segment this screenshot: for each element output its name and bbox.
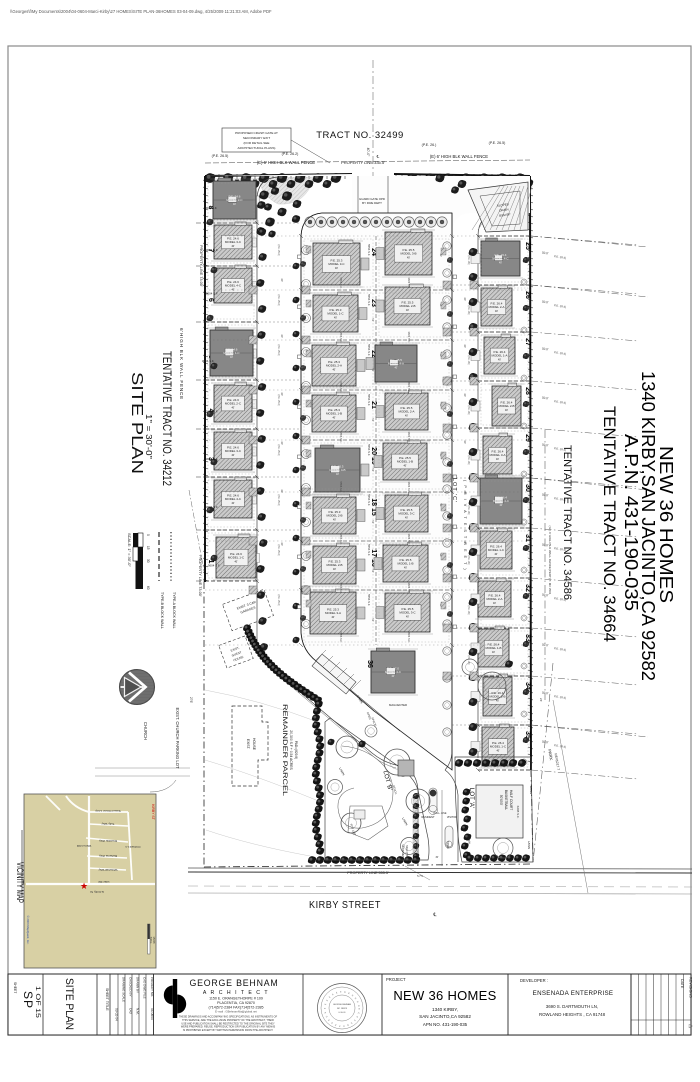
svg-text:E-mail : GBehnamMa@global.ne: E-mail : GBehnamMa@global.net: [215, 1010, 257, 1014]
svg-text:EXIST.: EXIST.: [246, 739, 250, 749]
svg-text:Lilac Rd: Lilac Rd: [98, 880, 109, 884]
svg-text:40': 40': [495, 310, 499, 313]
svg-text:REMAINDER PARCEL: REMAINDER PARCEL: [281, 704, 288, 797]
svg-text:PROJECT: PROJECT: [386, 977, 406, 982]
svg-text:40': 40': [231, 454, 235, 457]
svg-text:Orchard Ln: Orchard Ln: [125, 845, 140, 849]
svg-text:40': 40': [463, 344, 467, 348]
svg-text:KIRBY ST: KIRBY ST: [151, 804, 155, 819]
svg-text:PROPOSED CRASH GATE AT: PROPOSED CRASH GATE AT: [235, 131, 278, 135]
svg-text:25: 25: [524, 242, 531, 250]
svg-text:36: 36: [366, 660, 373, 668]
svg-text:HOUSE: HOUSE: [252, 738, 256, 751]
svg-text:SIGN (TYP): SIGN (TYP): [405, 845, 409, 859]
svg-text:PAD=(829.8): PAD=(829.8): [294, 741, 298, 759]
svg-text:26: 26: [524, 291, 531, 299]
svg-text:SITE PLAN: SITE PLAN: [63, 978, 75, 1030]
svg-text:O-D: O-D: [129, 1008, 133, 1015]
svg-text:1500ft: 1500ft: [152, 936, 156, 943]
svg-text:Whitehall Way: Whitehall Way: [98, 868, 118, 872]
svg-text:40': 40': [280, 278, 284, 282]
svg-text:3604 S.F.: 3604 S.F.: [407, 482, 411, 493]
svg-text:APN NO. 431-190-035: APN NO. 431-190-035: [423, 1022, 468, 1027]
svg-text:△: △: [688, 1024, 694, 1028]
svg-text:40': 40': [333, 568, 337, 571]
svg-text:28: 28: [524, 387, 531, 395]
svg-text:40': 40': [280, 334, 284, 338]
svg-text:(FOR DETAIL SEE: (FOR DETAIL SEE: [244, 141, 270, 145]
svg-text:30': 30': [435, 856, 439, 859]
svg-text:1 OF 15: 1 OF 15: [34, 986, 40, 1019]
svg-text:MODEL 1-C: MODEL 1-C: [490, 745, 507, 749]
svg-text:CAD DWG FILE: CAD DWG FILE: [143, 977, 147, 999]
svg-text:IS PROHIBITED EXCEPT BY WR: IS PROHIBITED EXCEPT BY WRITTEN PERMISSI…: [183, 1029, 274, 1032]
svg-text:33: 33: [524, 634, 531, 642]
svg-text:40': 40': [499, 261, 503, 264]
svg-text:1" = 30'-0": 1" = 30'-0": [144, 414, 154, 459]
svg-text:40': 40': [280, 441, 284, 445]
svg-text:5556 S.F.: 5556 S.F.: [367, 394, 371, 406]
svg-text:(P.E. 25.3): (P.E. 25.3): [277, 294, 280, 305]
svg-text:MODEL 3-A: MODEL 3-A: [489, 453, 505, 457]
svg-text:(P.E. 25.3): (P.E. 25.3): [277, 244, 280, 255]
svg-text:PROPERTY LINE 73.00': PROPERTY LINE 73.00': [198, 555, 202, 597]
svg-text:40': 40': [505, 409, 509, 412]
svg-text:E.Kirby St: E.Kirby St: [90, 890, 104, 894]
svg-text:SDWK: SDWK: [446, 841, 450, 849]
svg-text:TYPE-B BLOCK WALL: TYPE-B BLOCK WALL: [160, 592, 164, 629]
svg-text:MODEL 2-C: MODEL 2-C: [225, 402, 242, 406]
svg-text:5556 S.F.: 5556 S.F.: [367, 344, 371, 356]
svg-text:3604 S.F.: 3604 S.F.: [205, 206, 217, 210]
svg-text:40': 40': [280, 542, 284, 546]
svg-text:TYPE-A BLOCK WALL: TYPE-A BLOCK WALL: [172, 592, 176, 629]
svg-text:CHECKED BY: CHECKED BY: [129, 977, 133, 997]
svg-text:60: 60: [146, 586, 150, 590]
svg-text:40': 40': [231, 245, 235, 248]
svg-text:LAWN: LAWN: [529, 786, 533, 794]
svg-text:(P.E. 25.3): (P.E. 25.3): [277, 494, 280, 505]
svg-text:5556 S.F.: 5556 S.F.: [367, 544, 371, 556]
svg-text:(P.E. 26): (P.E. 26): [467, 455, 470, 464]
svg-text:5556 S.F.: 5556 S.F.: [339, 583, 343, 594]
svg-text:(P.E. 25.3): (P.E. 25.3): [277, 544, 280, 555]
svg-text:1150 E. ORANGETHORPE # 109: 1150 E. ORANGETHORPE # 109: [209, 997, 263, 1001]
svg-text:( E ) 6' HIGH BLK WALL FENC: ( E ) 6' HIGH BLK WALL FENCE(PERT) T. M#…: [548, 526, 552, 595]
svg-text:MODEL 1-B: MODEL 1-B: [397, 562, 413, 566]
svg-text:(P.E. 26): (P.E. 26): [467, 305, 470, 314]
svg-text:3604 S.F.: 3604 S.F.: [206, 292, 218, 296]
svg-text:A.P.N. 431-190-035: A.P.N. 431-190-035: [621, 434, 641, 611]
svg-text:MODEL 4-B: MODEL 4-B: [329, 468, 345, 472]
svg-text:MODEL 1-B: MODEL 1-B: [326, 412, 342, 416]
svg-text:40': 40': [496, 458, 500, 461]
svg-text:(P.E. 26.): (P.E. 26.): [422, 143, 437, 147]
svg-text:SHEET: SHEET: [13, 982, 17, 993]
svg-text:(P.E. 25.3): (P.E. 25.3): [277, 444, 280, 455]
svg-text:(P.E. 25.3): (P.E. 25.3): [277, 594, 280, 605]
svg-text:40': 40': [231, 502, 235, 505]
svg-text:MODEL 4-C: MODEL 4-C: [492, 257, 509, 261]
svg-text:40': 40': [407, 256, 411, 259]
svg-text:40': 40': [499, 504, 503, 507]
svg-text:6208 S.F.: 6208 S.F.: [516, 806, 520, 819]
svg-text:5556 S.F.: 5556 S.F.: [367, 494, 371, 506]
svg-text:MONUMENT: MONUMENT: [401, 844, 405, 860]
svg-text:Bahama Way: Bahama Way: [99, 854, 117, 858]
svg-text:DRAWING SCALE: DRAWING SCALE: [122, 977, 126, 1002]
svg-text:ENSENADA ENTERPRISE: ENSENADA ENTERPRISE: [533, 990, 614, 997]
svg-text:40': 40': [494, 553, 498, 556]
svg-text:(P.E. 26.2): (P.E. 26.2): [282, 152, 299, 156]
svg-text:5556 S.F.: 5556 S.F.: [367, 594, 371, 606]
svg-text:MODEL 4-C: MODEL 4-C: [225, 284, 242, 288]
svg-text:MODEL 2-A: MODEL 2-A: [326, 364, 342, 368]
svg-text:0: 0: [146, 534, 150, 536]
svg-text:40': 40': [391, 675, 395, 678]
svg-text:MODEL 1-C: MODEL 1-C: [228, 556, 245, 560]
svg-text:40': 40': [334, 316, 338, 319]
svg-text:40': 40': [405, 414, 409, 417]
svg-text:27: 27: [524, 338, 531, 346]
svg-text:MODEL 2-C: MODEL 2-C: [226, 198, 243, 202]
svg-text:5556 S.F.: 5556 S.F.: [367, 444, 371, 456]
svg-text:40': 40': [403, 464, 407, 467]
svg-text:40': 40': [333, 518, 337, 521]
svg-text:MODEL 3-C: MODEL 3-C: [328, 262, 345, 266]
svg-text:(P.E. 26): (P.E. 26): [467, 555, 470, 564]
svg-text:MODEL 2-A: MODEL 2-A: [486, 597, 502, 601]
svg-text:HALF COURT: HALF COURT: [509, 790, 513, 810]
svg-text:40': 40': [332, 416, 336, 419]
svg-text:40': 40': [498, 358, 502, 361]
svg-text:29: 29: [524, 434, 531, 442]
svg-text:(P.E. 25.3): (P.E. 25.3): [277, 394, 280, 405]
svg-text:3604 S.F.: 3604 S.F.: [206, 248, 218, 252]
svg-text:VICINITY MAP: VICINITY MAP: [14, 862, 25, 903]
svg-text:MODEL 4-C: MODEL 4-C: [225, 497, 242, 501]
svg-text:40': 40': [233, 203, 237, 206]
svg-text:40': 40': [496, 749, 500, 752]
svg-text:3604 S.F.: 3604 S.F.: [407, 583, 411, 594]
svg-text:REVISIONS: REVISIONS: [689, 977, 693, 998]
svg-text:MODEL 4-C: MODEL 4-C: [385, 670, 402, 674]
svg-text:ROLL. LINE: ROLL. LINE: [434, 812, 447, 815]
svg-text:40': 40': [406, 309, 410, 312]
svg-text:40': 40': [496, 699, 500, 702]
svg-text:MODEL 3-C: MODEL 3-C: [399, 611, 416, 615]
svg-text:Bramble Way: Bramble Way: [99, 839, 117, 843]
svg-text:TRACT NO. 32499: TRACT NO. 32499: [316, 130, 404, 141]
svg-text:A R C H I T E C T: A R C H I T E C T: [203, 990, 269, 996]
svg-text:MODEL 3-C: MODEL 3-C: [225, 449, 242, 453]
svg-text:MODEL 3-C: MODEL 3-C: [398, 512, 415, 516]
svg-text:MAILCENTER: MAILCENTER: [389, 703, 407, 707]
svg-text:MODEL 2-B: MODEL 2-B: [489, 695, 505, 699]
svg-text:40': 40': [463, 440, 467, 444]
svg-text:LOT 'A': LOT 'A': [468, 788, 475, 808]
svg-text:40'-0": 40'-0": [366, 148, 370, 157]
svg-text:40': 40': [394, 366, 398, 369]
svg-text:Tully Way: Tully Way: [101, 822, 114, 826]
svg-text:40': 40': [405, 516, 409, 519]
svg-text:MODEL 2-B: MODEL 2-B: [399, 304, 415, 308]
svg-text:(P.E. 26): (P.E. 26): [467, 655, 470, 664]
svg-text:MODEL 4-C: MODEL 4-C: [493, 499, 510, 503]
svg-text:MODEL 3-B: MODEL 3-B: [400, 252, 416, 256]
svg-text:MODEL 2-A: MODEL 2-A: [398, 410, 414, 414]
svg-text:GEORGE BEHNAM: GEORGE BEHNAM: [333, 1003, 351, 1006]
svg-text:RC 18823: RC 18823: [337, 1008, 348, 1010]
svg-text:VISITOR: VISITOR: [447, 815, 457, 819]
svg-text:MODEL 1-C: MODEL 1-C: [327, 312, 344, 316]
svg-text:SHEET TITLE: SHEET TITLE: [105, 988, 109, 1011]
svg-text:MODEL 1-C: MODEL 1-C: [488, 548, 505, 552]
svg-text:40': 40': [230, 356, 234, 359]
svg-text:NEW 36 HOMES: NEW 36 HOMES: [393, 988, 496, 1003]
svg-text:SCALE: 1" = 30'-0": SCALE: 1" = 30'-0": [127, 533, 132, 567]
svg-text:TENTATIVE TRACT NO. 34664: TENTATIVE TRACT NO. 34664: [600, 406, 619, 642]
svg-text:GEORGE BEHNAM: GEORGE BEHNAM: [189, 978, 278, 988]
svg-text:40': 40': [335, 267, 339, 270]
svg-text:MODEL 1-B: MODEL 1-B: [397, 460, 413, 464]
svg-text:40': 40': [231, 406, 235, 409]
svg-text:MODEL 3-C: MODEL 3-C: [225, 240, 242, 244]
svg-text:TENTATIVE TRACT NO. 34586: TENTATIVE TRACT NO. 34586: [561, 445, 573, 600]
svg-text:(P.E. 26): (P.E. 26): [467, 405, 470, 414]
svg-text:ROWLAND HEIGHTS , CA 91748: ROWLAND HEIGHTS , CA 91748: [539, 1012, 606, 1017]
svg-text:40': 40': [492, 651, 496, 654]
svg-text:TENTATIVE TRACT NO. 34212: TENTATIVE TRACT NO. 34212: [160, 351, 172, 486]
svg-text:40': 40': [331, 616, 335, 619]
svg-text:6'HIGH BLK WALL FENCE: 6'HIGH BLK WALL FENCE: [179, 328, 184, 400]
svg-text:30: 30: [524, 484, 531, 492]
svg-text:5556 S.F.: 5556 S.F.: [339, 632, 343, 643]
svg-text:1340 KIRBY,: 1340 KIRBY,: [432, 1007, 458, 1012]
svg-text:(P.E. 26): (P.E. 26): [467, 355, 470, 364]
svg-text:40': 40': [404, 566, 408, 569]
svg-text:★: ★: [80, 881, 88, 891]
svg-text:℄: ℄: [376, 154, 380, 159]
svg-text:MODEL 1-C: MODEL 1-C: [223, 351, 240, 355]
svg-text:(P.E. 26.5): (P.E. 26.5): [489, 141, 506, 145]
svg-text:(P.E. 25.3): (P.E. 25.3): [277, 344, 280, 355]
svg-text:MODEL 3-A: MODEL 3-A: [325, 611, 341, 615]
svg-text:03-02-04: 03-02-04: [115, 1008, 119, 1021]
svg-text:40': 40': [463, 540, 467, 544]
svg-text:32: 32: [524, 584, 531, 592]
svg-text:SECONDARY EXIT: SECONDARY EXIT: [243, 136, 270, 140]
svg-text:3604 S.F.: 3604 S.F.: [407, 534, 411, 545]
svg-text:PROPERTY LINE 555.5': PROPERTY LINE 555.5': [347, 871, 389, 875]
svg-text:40': 40': [280, 489, 284, 493]
svg-text:30: 30: [146, 559, 150, 563]
svg-text:40': 40': [463, 490, 467, 494]
svg-text:N.M.: N.M.: [136, 1008, 140, 1015]
svg-text:EXIST. CHURCH PARKING LOT: EXIST. CHURCH PARKING LOT: [175, 707, 180, 769]
svg-text:40': 40': [332, 368, 336, 371]
svg-text:40': 40': [234, 560, 238, 563]
svg-text:5556 S.F.: 5556 S.F.: [367, 294, 371, 306]
svg-text:276': 276': [189, 697, 193, 703]
svg-text:(P.E. 26): (P.E. 26): [467, 605, 470, 614]
svg-text:ARCHITECTURAL PLANS): ARCHITECTURAL PLANS): [238, 146, 276, 150]
svg-text:(E) 6' HIGH BLK WALL FENC: (E) 6' HIGH BLK WALL FENCE: [430, 154, 488, 159]
svg-text:© 2006 MapQuest, Inc.: © 2006 MapQuest, Inc.: [26, 916, 30, 945]
svg-text:20,300 S.F + 0.54 ACRES: 20,300 S.F + 0.54 ACRES: [289, 730, 293, 770]
svg-text:34: 34: [524, 682, 531, 690]
svg-text:5556 S.F.: 5556 S.F.: [339, 534, 343, 545]
svg-text:3604 S.F.: 3604 S.F.: [407, 632, 411, 643]
svg-text:24': 24': [539, 698, 543, 702]
svg-text:MODEL 2-A: MODEL 2-A: [488, 305, 504, 309]
svg-text:40': 40': [406, 615, 410, 618]
svg-text:KIRBY STREET: KIRBY STREET: [309, 900, 381, 911]
svg-text:15: 15: [146, 546, 150, 550]
svg-text:5556 S.F.: 5556 S.F.: [339, 482, 343, 493]
svg-text:5556 S.F.: 5556 S.F.: [367, 244, 371, 256]
svg-text:40': 40': [463, 393, 467, 397]
svg-text:Sweet Clover Loop: Sweet Clover Loop: [95, 809, 121, 813]
svg-text:50'X50': 50'X50': [499, 795, 503, 806]
svg-text:3604 S.F.: 3604 S.F.: [208, 564, 220, 568]
svg-text:BASKETBALL: BASKETBALL: [504, 790, 508, 811]
svg-text:MODEL 1-A: MODEL 1-A: [491, 354, 507, 358]
svg-text:40': 40': [463, 297, 467, 301]
svg-text:LOT 'C': LOT 'C': [451, 478, 457, 503]
svg-text:MODEL 2-B: MODEL 2-B: [326, 514, 342, 518]
svg-text:Warren Rd: Warren Rd: [76, 844, 91, 848]
svg-text:DRAWN BY: DRAWN BY: [136, 977, 140, 993]
svg-text:CHURCH: CHURCH: [143, 722, 148, 740]
svg-text:40': 40': [280, 392, 284, 396]
svg-text:BY FIRE DEPT: BY FIRE DEPT: [362, 201, 382, 205]
svg-text:PROPERTY LINE 335.5': PROPERTY LINE 335.5': [341, 160, 385, 165]
svg-text:PLACENTIA, CA 92870: PLACENTIA, CA 92870: [217, 1001, 255, 1005]
svg-text:(P.E. 26): (P.E. 26): [467, 505, 470, 514]
svg-text:DATE: DATE: [680, 979, 684, 989]
svg-text:DEVELOPER :: DEVELOPER :: [520, 978, 548, 983]
svg-text:40': 40': [336, 473, 340, 476]
svg-text:MODEL 2-B: MODEL 2-B: [326, 563, 342, 567]
svg-text:LAWN: LAWN: [527, 841, 531, 849]
svg-text:40': 40': [493, 602, 497, 605]
svg-text:PROPERTY LINE 73.00': PROPERTY LINE 73.00': [199, 245, 203, 287]
svg-text:6-30-09: 6-30-09: [339, 1012, 347, 1014]
svg-text:(P.E. 26): (P.E. 26): [467, 255, 470, 264]
svg-text:SAN JACINTO,CA 92582: SAN JACINTO,CA 92582: [419, 1014, 471, 1019]
svg-text:\\Georges\f\My Documents\2004\: \\Georges\f\My Documents\2004\04-0604-Ma…: [10, 9, 272, 14]
svg-text:MODEL 2-B: MODEL 2-B: [498, 404, 514, 408]
svg-text:(P.E. 26.5): (P.E. 26.5): [212, 154, 229, 158]
svg-text:3690 S. DARTMOUTH LN,: 3690 S. DARTMOUTH LN,: [546, 1004, 598, 1009]
svg-text:NEW 36 HOMES: NEW 36 HOMES: [656, 446, 676, 603]
svg-text:SITE PLAN: SITE PLAN: [128, 372, 145, 474]
svg-text:5.7'S: 5.7'S: [417, 874, 423, 878]
svg-text:MODEL 4-A: MODEL 4-A: [388, 362, 404, 366]
svg-text:MODEL 1-B: MODEL 1-B: [485, 646, 501, 650]
svg-text:SP: SP: [21, 991, 35, 1009]
